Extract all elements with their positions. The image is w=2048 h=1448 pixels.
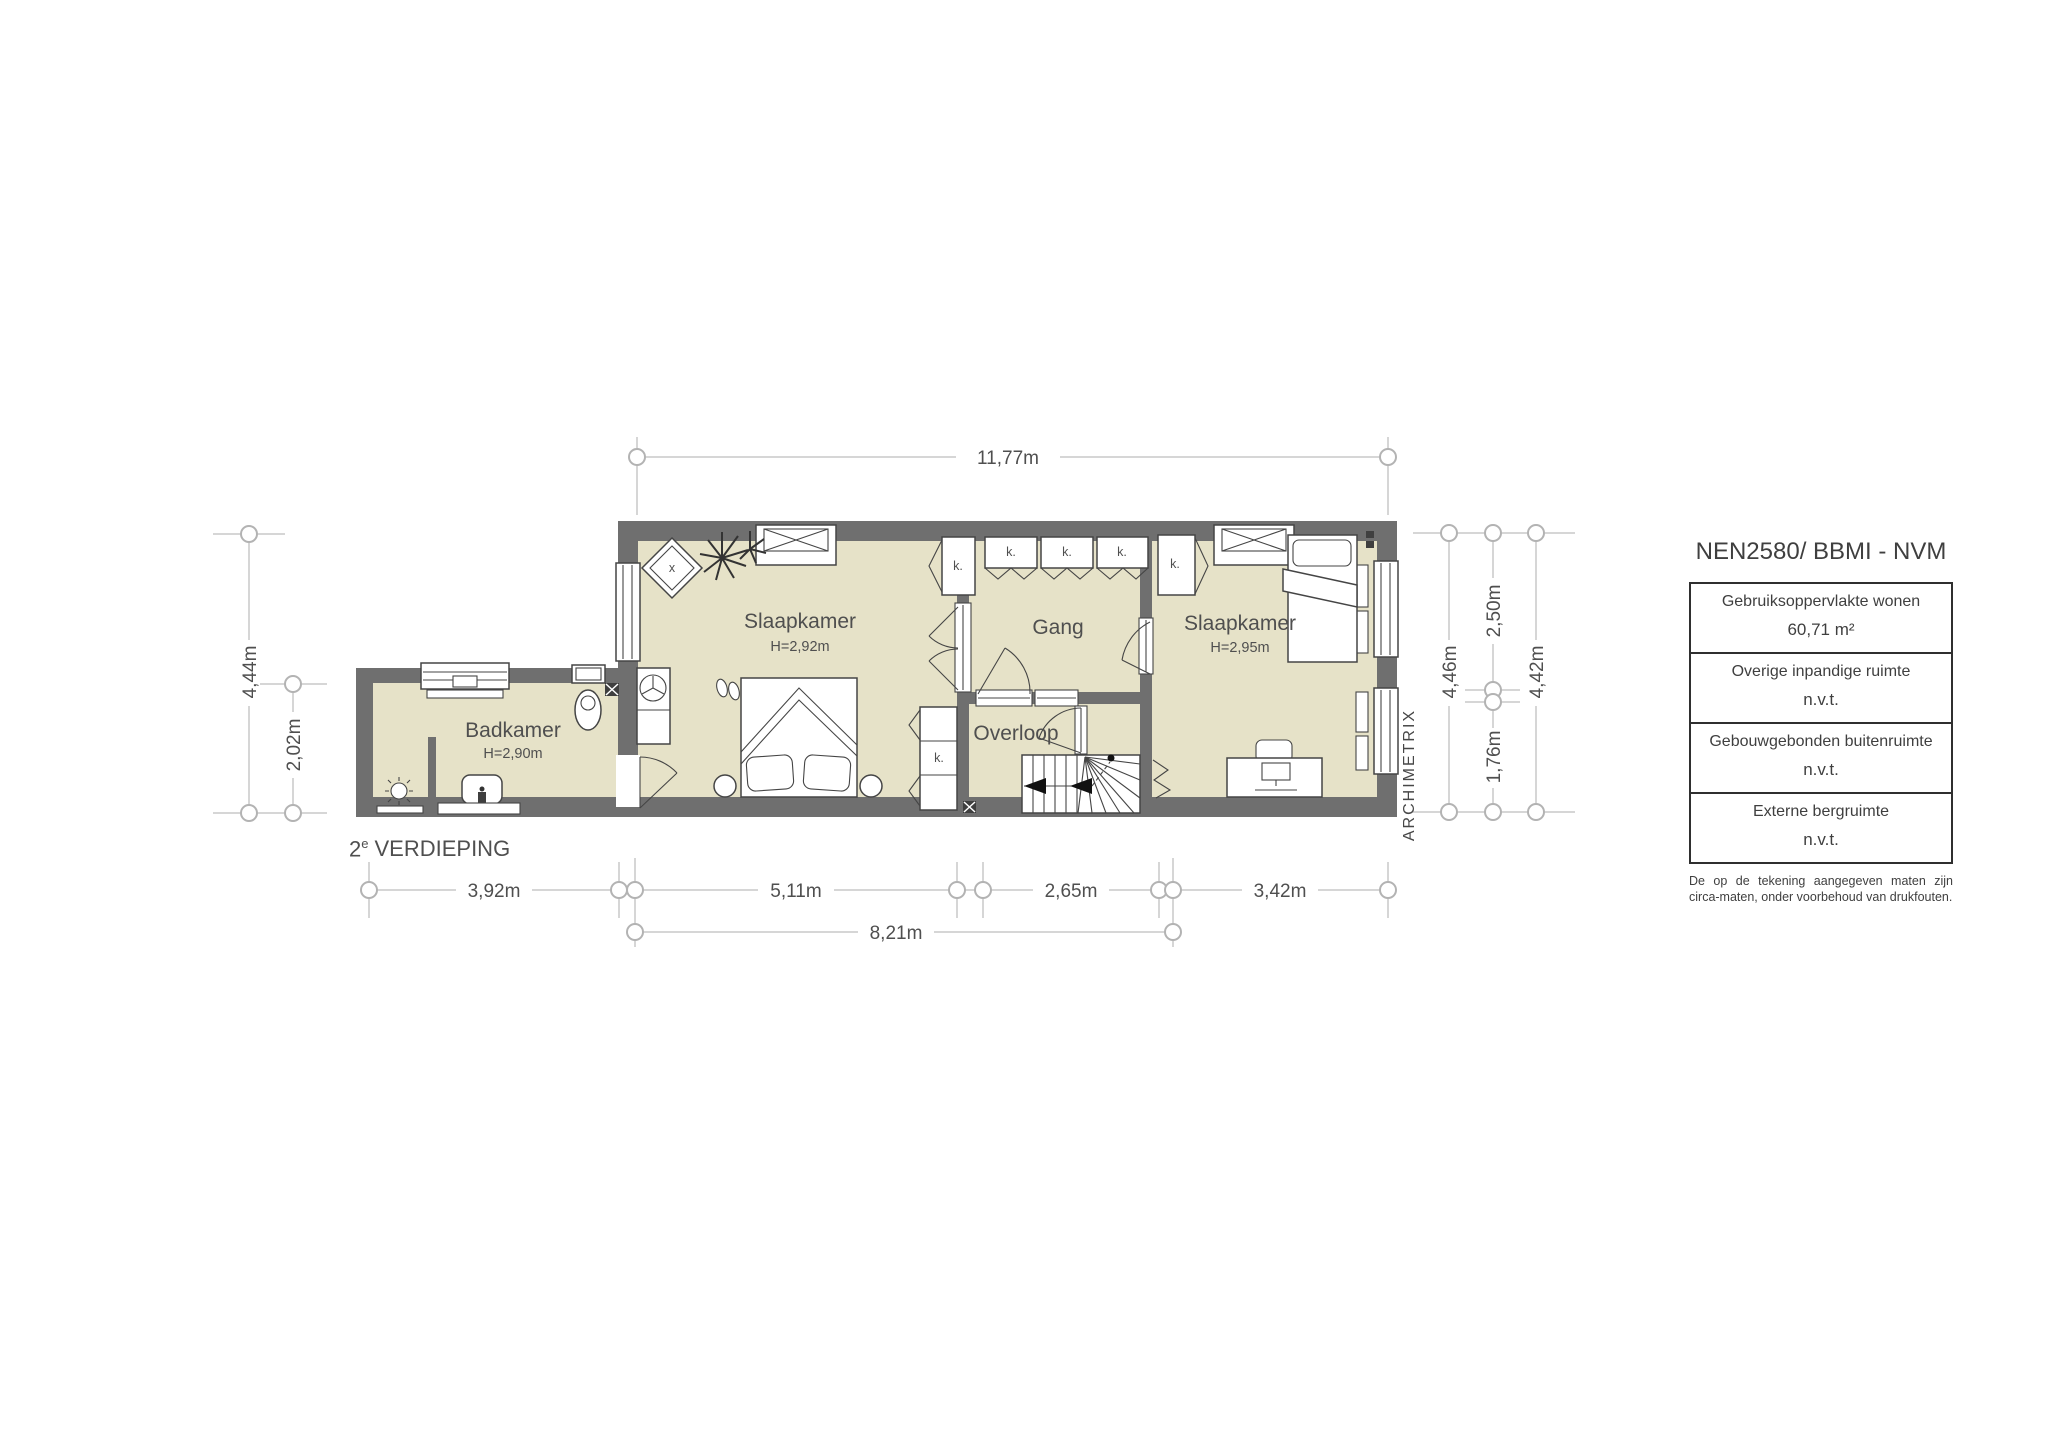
room-name-slaapkamer1: Slaapkamer: [744, 610, 856, 633]
legend-table: Gebruiksoppervlakte wonen 60,71 m² Overi…: [1689, 582, 1953, 864]
vent-icon: [605, 683, 619, 696]
legend-row-value: n.v.t.: [1695, 690, 1947, 710]
window-top-right-icon: [1214, 525, 1294, 565]
legend-row: Overige inpandige ruimte n.v.t.: [1691, 654, 1951, 724]
legend-row-label: Externe bergruimte: [1695, 803, 1947, 821]
window-right-wall-upper-icon: [1374, 561, 1398, 657]
dim-bottom-3: 2,65m: [1045, 881, 1098, 902]
monitor-icon: [1262, 763, 1290, 780]
window-right-wall-lower-icon: [1374, 688, 1398, 774]
radiator-icon: [427, 690, 503, 698]
legend-row-value: 60,71 m²: [1695, 620, 1947, 640]
closet-label: k.: [1170, 557, 1180, 571]
closet-label: k.: [1006, 545, 1016, 559]
vent-icon: [1366, 531, 1374, 538]
window-badkamer-icon: [421, 663, 509, 689]
legend-title: NEN2580/ BBMI - NVM: [1689, 538, 1953, 566]
diamond-mark: x: [669, 561, 676, 575]
stairs: [1022, 755, 1140, 814]
window-top-left-icon: [756, 525, 836, 565]
room-height-slaapkamer2: H=2,95m: [1210, 640, 1269, 656]
nightstand-icon: [714, 775, 736, 797]
legend-disclaimer: De op de tekening aangegeven maten zijn …: [1689, 873, 1953, 906]
floor-title-rest: VERDIEPING: [374, 836, 510, 861]
counter-icon: [438, 803, 520, 814]
floorplan-page: x k.: [0, 0, 2048, 1448]
room-name-badkamer: Badkamer: [465, 719, 561, 742]
floor-title-num: 2: [349, 836, 361, 861]
dim-top: 11,77m: [977, 448, 1039, 469]
room-height-badkamer: H=2,90m: [483, 746, 542, 762]
floor-title-sup: e: [361, 836, 368, 851]
legend-row-value: n.v.t.: [1695, 830, 1947, 850]
closet-label: k.: [934, 751, 944, 765]
legend-row-value: n.v.t.: [1695, 760, 1947, 780]
vent-icon: [1366, 541, 1374, 548]
room-name-overloop: Overloop: [973, 722, 1058, 745]
radiator-icon: [1356, 565, 1368, 607]
dim-right-1: 4,46m: [1440, 646, 1461, 699]
single-bed-icon: [1283, 535, 1357, 662]
vent-icon: [963, 801, 976, 813]
nightstand-icon: [860, 775, 882, 797]
branding-archimetrix: ARCHIMETRIX: [1401, 709, 1418, 841]
room-height-slaapkamer1: H=2,92m: [770, 639, 829, 655]
window-left-wall-icon: [616, 563, 640, 661]
dim-bottom-1: 3,92m: [468, 881, 521, 902]
legend-row: Externe bergruimte n.v.t.: [1691, 794, 1951, 862]
shelf-icon: [377, 806, 423, 813]
dim-left-2: 2,02m: [284, 719, 305, 772]
room-name-gang: Gang: [1032, 616, 1083, 639]
dim-right-2: 2,50m: [1484, 585, 1505, 638]
dim-right-4: 4,42m: [1527, 646, 1548, 699]
radiator-icon: [1356, 736, 1368, 770]
radiator-icon: [1356, 611, 1368, 653]
floor-title: 2eVERDIEPING: [349, 836, 510, 862]
dim-total: 8,21m: [870, 923, 923, 944]
legend-panel: NEN2580/ BBMI - NVM Gebruiksoppervlakte …: [1689, 538, 1953, 906]
dim-right-3: 1,76m: [1484, 731, 1505, 784]
legend-row: Gebouwgebonden buitenruimte n.v.t.: [1691, 724, 1951, 794]
legend-row-label: Overige inpandige ruimte: [1695, 663, 1947, 681]
closet-label: k.: [1117, 545, 1127, 559]
dim-bottom-2: 5,11m: [770, 881, 821, 902]
closet-label: k.: [953, 559, 963, 573]
legend-row-label: Gebruiksoppervlakte wonen: [1695, 593, 1947, 611]
legend-row-label: Gebouwgebonden buitenruimte: [1695, 733, 1947, 751]
radiator-icon: [1356, 692, 1368, 732]
dim-bottom-4: 3,42m: [1254, 881, 1307, 902]
wardrobe-icon: [637, 668, 670, 744]
closet-label: k.: [1062, 545, 1072, 559]
legend-row: Gebruiksoppervlakte wonen 60,71 m²: [1691, 584, 1951, 654]
dim-left-1: 4,44m: [240, 646, 261, 699]
room-name-slaapkamer2: Slaapkamer: [1184, 612, 1296, 635]
